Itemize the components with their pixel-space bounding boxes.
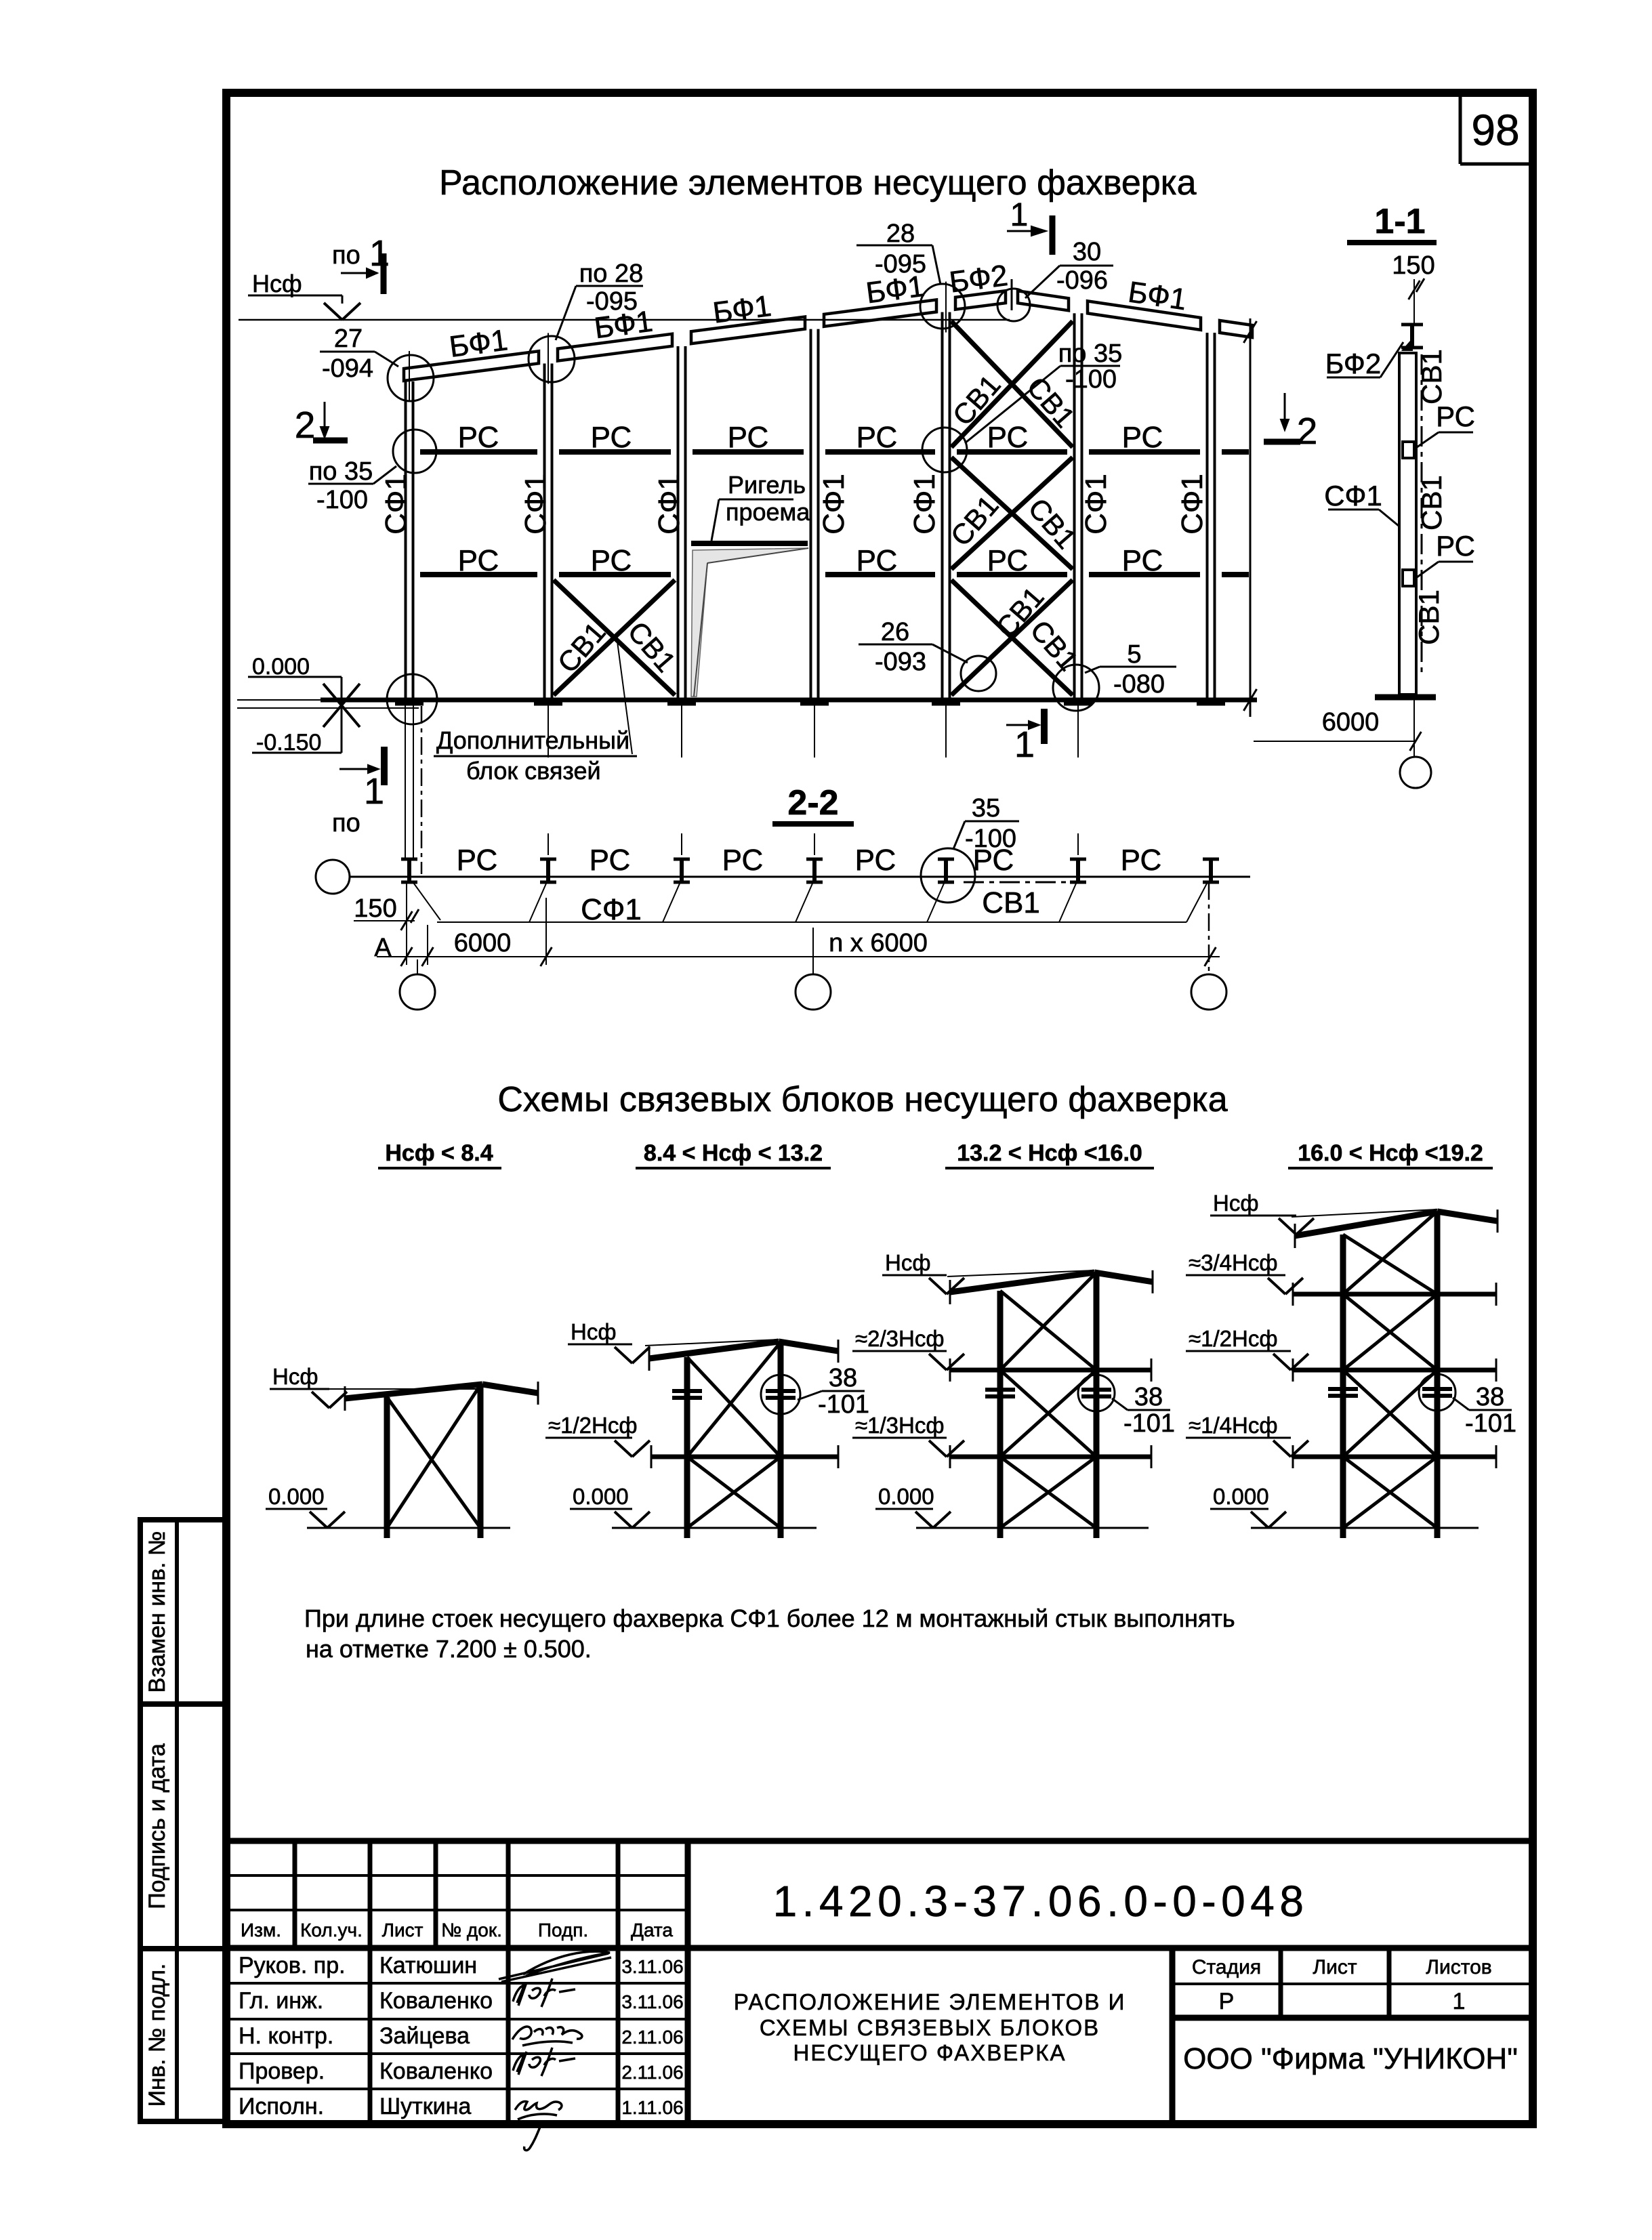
svg-text:150: 150 bbox=[1392, 251, 1434, 280]
svg-text:Коваленко: Коваленко bbox=[379, 1988, 493, 2014]
svg-text:РС: РС bbox=[458, 421, 499, 454]
svg-text:СФ1: СФ1 bbox=[653, 474, 686, 535]
svg-text:3.11.06: 3.11.06 bbox=[621, 1991, 683, 2012]
svg-text:РС: РС bbox=[1122, 421, 1163, 454]
svg-text:2.11.06: 2.11.06 bbox=[621, 2062, 683, 2083]
svg-text:Взамен инв. №: Взамен инв. № bbox=[144, 1531, 170, 1693]
svg-text:СФ1: СФ1 bbox=[1324, 480, 1382, 512]
svg-text:РС: РС bbox=[987, 421, 1029, 454]
svg-text:Изм.: Изм. bbox=[241, 1920, 281, 1941]
svg-text:98: 98 bbox=[1471, 106, 1519, 154]
svg-text:РС: РС bbox=[856, 544, 898, 577]
svg-text:6000: 6000 bbox=[1322, 708, 1380, 737]
svg-text:№ док.: № док. bbox=[441, 1920, 502, 1941]
svg-text:-095: -095 bbox=[586, 287, 638, 316]
svg-text:-096: -096 bbox=[1056, 266, 1108, 295]
svg-text:16.0 < Нсф <19.2: 16.0 < Нсф <19.2 bbox=[1298, 1140, 1483, 1166]
svg-text:≈2/3Нсф: ≈2/3Нсф bbox=[855, 1326, 944, 1351]
svg-text:0.000: 0.000 bbox=[878, 1484, 934, 1509]
svg-text:-080: -080 bbox=[1113, 670, 1165, 699]
svg-text:≈1/2Нсф: ≈1/2Нсф bbox=[548, 1413, 637, 1438]
svg-text:СВ1: СВ1 bbox=[982, 886, 1040, 919]
svg-text:проема: проема bbox=[726, 498, 810, 526]
svg-text:38: 38 bbox=[829, 1364, 857, 1392]
svg-text:СФ1: СФ1 bbox=[581, 893, 642, 926]
svg-text:СФ1: СФ1 bbox=[908, 474, 941, 535]
svg-text:Нсф < 8.4: Нсф < 8.4 bbox=[385, 1140, 493, 1166]
svg-text:-100: -100 bbox=[316, 486, 368, 514]
svg-text:1: 1 bbox=[369, 233, 390, 274]
svg-text:-100: -100 bbox=[965, 825, 1016, 853]
svg-text:Шуткина: Шуткина bbox=[379, 2094, 471, 2119]
svg-text:Нсф: Нсф bbox=[571, 1319, 616, 1344]
svg-text:Нсф: Нсф bbox=[272, 1364, 318, 1389]
svg-text:≈1/3Нсф: ≈1/3Нсф bbox=[855, 1413, 944, 1438]
svg-text:СВ1: СВ1 bbox=[1413, 589, 1445, 645]
svg-text:28: 28 bbox=[886, 220, 915, 248]
svg-text:-101: -101 bbox=[1123, 1409, 1175, 1438]
svg-text:Р: Р bbox=[1219, 1989, 1235, 2014]
svg-text:Инв. № подл.: Инв. № подл. bbox=[144, 1964, 170, 2107]
svg-text:РС: РС bbox=[591, 544, 632, 577]
svg-text:РС: РС bbox=[1122, 544, 1163, 577]
svg-text:1: 1 bbox=[1014, 724, 1035, 765]
svg-text:-094: -094 bbox=[322, 354, 373, 383]
svg-text:0.000: 0.000 bbox=[268, 1484, 325, 1509]
svg-text:26: 26 bbox=[881, 618, 909, 646]
svg-text:СФ1: СФ1 bbox=[379, 474, 413, 535]
svg-text:Нсф: Нсф bbox=[1213, 1190, 1258, 1216]
svg-text:РС: РС bbox=[458, 544, 499, 577]
svg-text:Подп.: Подп. bbox=[538, 1920, 588, 1941]
svg-text:Стадия: Стадия bbox=[1192, 1956, 1261, 1978]
svg-text:2-2: 2-2 bbox=[787, 783, 838, 823]
svg-text:6000: 6000 bbox=[454, 929, 512, 957]
svg-text:блок связей: блок связей bbox=[466, 757, 601, 785]
svg-text:ООО "Фирма "УНИКОН": ООО "Фирма "УНИКОН" bbox=[1183, 2042, 1518, 2075]
svg-text:5: 5 bbox=[1127, 640, 1141, 669]
svg-text:35: 35 bbox=[972, 794, 1000, 823]
svg-text:3.11.06: 3.11.06 bbox=[621, 1956, 683, 1977]
svg-text:Дополнительный: Дополнительный bbox=[436, 726, 629, 754]
svg-text:А: А bbox=[374, 934, 392, 962]
svg-text:СВ1: СВ1 bbox=[1416, 475, 1447, 531]
svg-text:150: 150 bbox=[354, 894, 396, 923]
svg-text:Схемы связевых блоков несущег: Схемы связевых блоков несущего фахверка bbox=[497, 1080, 1227, 1119]
svg-text:РС: РС bbox=[856, 421, 898, 454]
svg-text:РС: РС bbox=[855, 844, 896, 877]
svg-text:Коваленко: Коваленко bbox=[379, 2058, 493, 2084]
svg-text:Исполн.: Исполн. bbox=[239, 2094, 324, 2119]
svg-text:РС: РС bbox=[457, 844, 498, 877]
svg-text:Дата: Дата bbox=[631, 1920, 673, 1941]
svg-text:Н. контр.: Н. контр. bbox=[239, 2023, 333, 2049]
svg-text:2.11.06: 2.11.06 bbox=[621, 2027, 683, 2048]
svg-text:27: 27 bbox=[334, 325, 363, 353]
svg-text:Подпись и дата: Подпись и дата bbox=[144, 1743, 170, 1909]
svg-text:1: 1 bbox=[1010, 197, 1029, 233]
svg-text:-093: -093 bbox=[875, 648, 926, 676]
svg-text:0.000: 0.000 bbox=[252, 654, 310, 680]
svg-text:БФ2: БФ2 bbox=[1325, 348, 1381, 379]
svg-text:Провер.: Провер. bbox=[239, 2058, 325, 2084]
svg-text:СВ1: СВ1 bbox=[1416, 349, 1447, 405]
svg-text:СФ1: СФ1 bbox=[519, 474, 552, 535]
svg-text:на отметке 7.200 ± 0.500.: на отметке 7.200 ± 0.500. bbox=[306, 1635, 592, 1663]
svg-text:Ригель: Ригель bbox=[728, 471, 806, 499]
svg-text:по 35: по 35 bbox=[1058, 339, 1123, 368]
svg-text:Лист: Лист bbox=[1313, 1956, 1357, 1978]
svg-text:СФ1: СФ1 bbox=[817, 474, 850, 535]
svg-text:Зайцева: Зайцева bbox=[379, 2023, 470, 2049]
svg-text:по 35: по 35 bbox=[309, 457, 373, 486]
svg-text:РС: РС bbox=[987, 544, 1029, 577]
svg-text:≈3/4Нсф: ≈3/4Нсф bbox=[1189, 1250, 1277, 1275]
svg-text:Лист: Лист bbox=[382, 1920, 424, 1941]
svg-text:Нсф: Нсф bbox=[252, 270, 302, 297]
svg-text:2: 2 bbox=[1297, 410, 1318, 452]
svg-text:Расположение элементов несуще: Расположение элементов несущего фахверка bbox=[439, 163, 1197, 203]
svg-text:38: 38 bbox=[1476, 1383, 1504, 1411]
svg-text:Катюшин: Катюшин bbox=[379, 1953, 477, 1978]
svg-text:1: 1 bbox=[1453, 1989, 1466, 2014]
svg-text:-0.150: -0.150 bbox=[256, 730, 321, 755]
svg-text:1.420.3-37.06.0-0-048: 1.420.3-37.06.0-0-048 bbox=[773, 1877, 1309, 1926]
svg-text:СХЕМЫ СВЯЗЕВЫХ БЛОКОВ: СХЕМЫ СВЯЗЕВЫХ БЛОКОВ bbox=[760, 2015, 1100, 2040]
svg-text:При длине стоек несущего фахве: При длине стоек несущего фахверка СФ1 бо… bbox=[304, 1604, 1235, 1632]
svg-text:13.2 < Нсф <16.0: 13.2 < Нсф <16.0 bbox=[957, 1140, 1142, 1166]
svg-text:n x 6000: n x 6000 bbox=[829, 929, 928, 957]
svg-text:Руков. пр.: Руков. пр. bbox=[239, 1953, 346, 1978]
svg-text:РС: РС bbox=[1121, 844, 1162, 877]
svg-text:1.11.06: 1.11.06 bbox=[621, 2097, 683, 2118]
svg-text:30: 30 bbox=[1073, 238, 1101, 266]
svg-text:Гл. инж.: Гл. инж. bbox=[239, 1988, 323, 2014]
svg-text:РАСПОЛОЖЕНИЕ ЭЛЕМЕНТОВ И: РАСПОЛОЖЕНИЕ ЭЛЕМЕНТОВ И bbox=[734, 1989, 1126, 2014]
svg-text:Кол.уч.: Кол.уч. bbox=[300, 1920, 363, 1941]
svg-text:1-1: 1-1 bbox=[1374, 202, 1425, 241]
svg-text:38: 38 bbox=[1134, 1383, 1163, 1411]
svg-text:РС: РС bbox=[1436, 530, 1475, 562]
svg-text:Листов: Листов bbox=[1426, 1956, 1491, 1978]
svg-text:РС: РС bbox=[728, 421, 769, 454]
svg-text:по: по bbox=[332, 809, 360, 837]
svg-text:-095: -095 bbox=[875, 250, 926, 278]
svg-text:0.000: 0.000 bbox=[573, 1484, 629, 1509]
svg-text:2: 2 bbox=[295, 404, 316, 446]
svg-text:по 28: по 28 bbox=[579, 260, 644, 288]
svg-text:0.000: 0.000 bbox=[1213, 1484, 1269, 1509]
svg-text:РС: РС bbox=[590, 844, 631, 877]
svg-text:по: по bbox=[332, 241, 360, 270]
svg-text:-100: -100 bbox=[1065, 365, 1117, 394]
svg-text:Нсф: Нсф bbox=[885, 1250, 930, 1275]
svg-text:РС: РС bbox=[722, 844, 764, 877]
svg-text:СФ1: СФ1 bbox=[1079, 474, 1113, 535]
svg-text:1: 1 bbox=[364, 771, 384, 812]
svg-text:≈1/2Нсф: ≈1/2Нсф bbox=[1189, 1326, 1277, 1351]
svg-text:8.4 < Нсф < 13.2: 8.4 < Нсф < 13.2 bbox=[644, 1140, 823, 1166]
svg-text:-101: -101 bbox=[1465, 1409, 1516, 1438]
svg-text:НЕСУЩЕГО ФАХВЕРКА: НЕСУЩЕГО ФАХВЕРКА bbox=[793, 2040, 1067, 2065]
svg-text:РС: РС bbox=[591, 421, 632, 454]
svg-text:≈1/4Нсф: ≈1/4Нсф bbox=[1189, 1413, 1277, 1438]
svg-text:СФ1: СФ1 bbox=[1176, 474, 1209, 535]
svg-text:РС: РС bbox=[1436, 400, 1475, 432]
